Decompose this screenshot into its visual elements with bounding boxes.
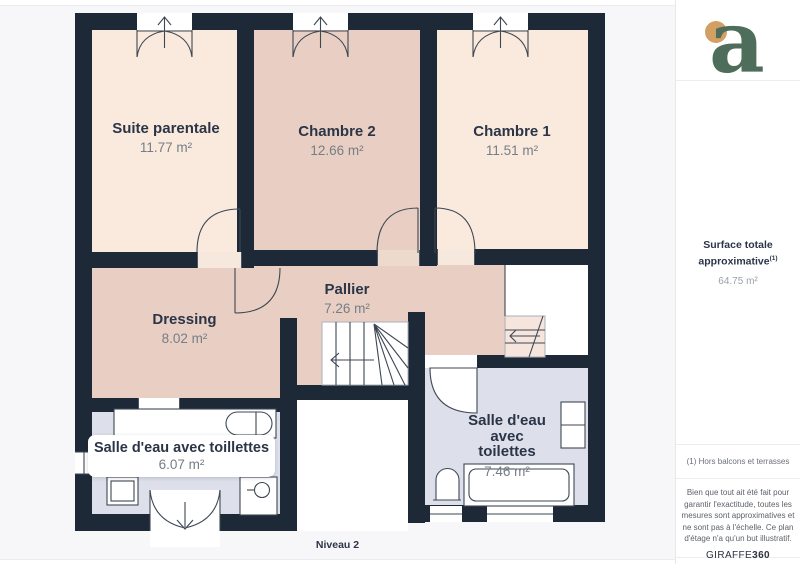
french-door-opening [150, 490, 220, 547]
room-name: Pallier [287, 282, 407, 298]
window-opening-bath2-b [487, 506, 553, 522]
legal-section: Bien que tout ait été fait pour garantir… [676, 479, 800, 558]
wall-void-right [408, 312, 425, 523]
label-salle-eau-2-area: 7.46 m² [462, 464, 552, 479]
surface-title-line2: approximative [698, 256, 769, 268]
surface-title-line1: Surface totale [703, 239, 772, 251]
logo-section: a [676, 0, 800, 81]
label-card-salle-eau-1: Salle d'eau avec toillettes 6.07 m² [88, 435, 275, 477]
brand-logo-icon: a [709, 0, 765, 81]
room-name: Chambre 1 [437, 124, 587, 140]
room-name: Dressing [107, 312, 262, 328]
brand-name: GIRAFFE [706, 550, 752, 561]
room-area: 7.46 m² [462, 464, 552, 479]
label-pallier: Pallier 7.26 m² [287, 282, 407, 316]
wall-void-top [280, 385, 425, 400]
room-name: Suite parentale [96, 121, 236, 137]
label-suite-parentale: Suite parentale 11.77 m² [96, 121, 236, 155]
room-area: 6.07 m² [88, 457, 275, 472]
brand-suffix: 360 [752, 550, 770, 561]
stairwell-void-center [297, 400, 408, 531]
wall-dressing-bottom [75, 398, 297, 412]
wall-bath2-top [477, 355, 588, 368]
surface-total-section: Surface totale approximative(1) 64.75 m² [676, 81, 800, 445]
window-opening-suite [137, 13, 192, 30]
room-area: 8.02 m² [107, 331, 262, 346]
wall-void-left [280, 318, 297, 531]
room-name: Chambre 2 [257, 124, 417, 140]
floorplan-page: Suite parentale 11.77 m² Chambre 2 12.66… [0, 0, 800, 564]
window-opening-bath2-a [430, 506, 462, 522]
door-opening-chambre2 [377, 250, 420, 266]
room-area: 11.51 m² [437, 143, 587, 158]
window-opening-chambre1 [473, 13, 528, 30]
room-area: 11.77 m² [96, 140, 236, 155]
wall-suite-chambre2 [237, 30, 254, 268]
label-chambre-1: Chambre 1 11.51 m² [437, 124, 587, 158]
door-opening-bath2 [425, 355, 477, 368]
wall-right [588, 13, 605, 522]
label-salle-eau-2: Salle d'eau avec toilettes [461, 413, 553, 460]
info-sidebar: a Surface totale approximative(1) 64.75 … [675, 0, 800, 564]
stairwell-void-right [505, 265, 588, 355]
door-opening-suite [197, 252, 242, 268]
label-dressing: Dressing 8.02 m² [107, 312, 262, 346]
door-opening-chambre1 [437, 249, 475, 265]
room-name: Salle d'eau avec toilettes [461, 413, 553, 460]
surface-total-value: 64.75 m² [718, 276, 757, 287]
door-opening-dressing-bath [138, 398, 180, 412]
room-name: Salle d'eau avec toillettes [88, 440, 275, 456]
room-area: 7.26 m² [287, 301, 407, 316]
room-pallier-corridor [425, 265, 505, 355]
label-chambre-2: Chambre 2 12.66 m² [257, 124, 417, 158]
footnote-text: (1) Hors balcons et terrasses [687, 457, 790, 466]
footnote-ref: (1) [770, 255, 778, 262]
disclaimer-text: Bien que tout ait été fait pour garantir… [679, 487, 797, 545]
footnote-section: (1) Hors balcons et terrasses [676, 445, 800, 479]
window-opening-chambre2 [293, 13, 348, 30]
brand-wordmark: GIRAFFE360 [676, 550, 800, 561]
wall-chambre2-chambre1 [420, 30, 437, 266]
room-area: 12.66 m² [257, 143, 417, 158]
level-label: Niveau 2 [280, 539, 395, 551]
surface-total-title: Surface totale approximative(1) [698, 238, 777, 269]
